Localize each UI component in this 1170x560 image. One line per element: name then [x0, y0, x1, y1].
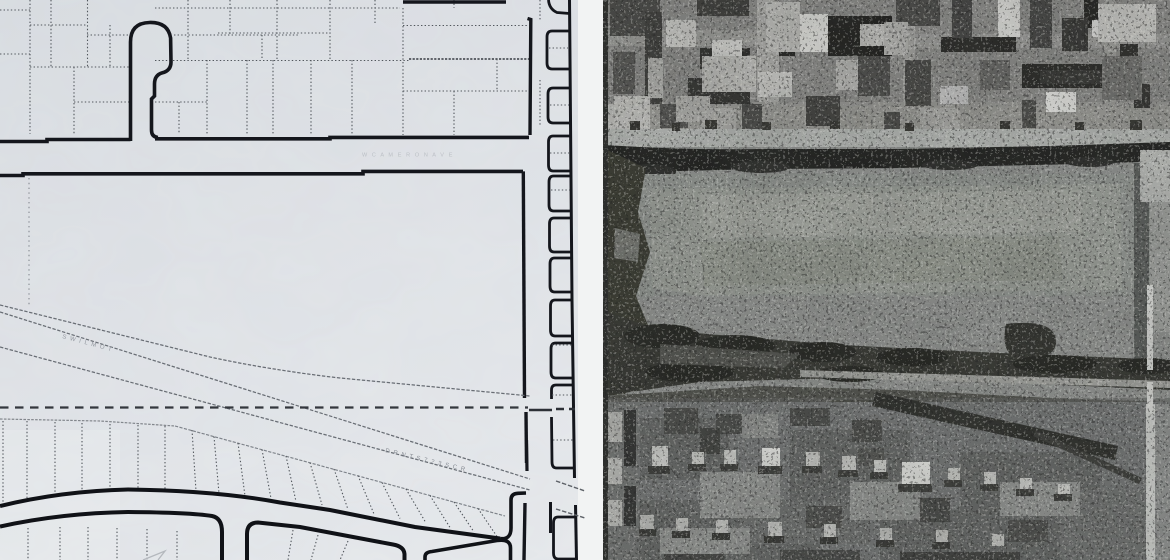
- svg-text:W C A M E R O N A V E: W C A M E R O N A V E: [362, 153, 454, 159]
